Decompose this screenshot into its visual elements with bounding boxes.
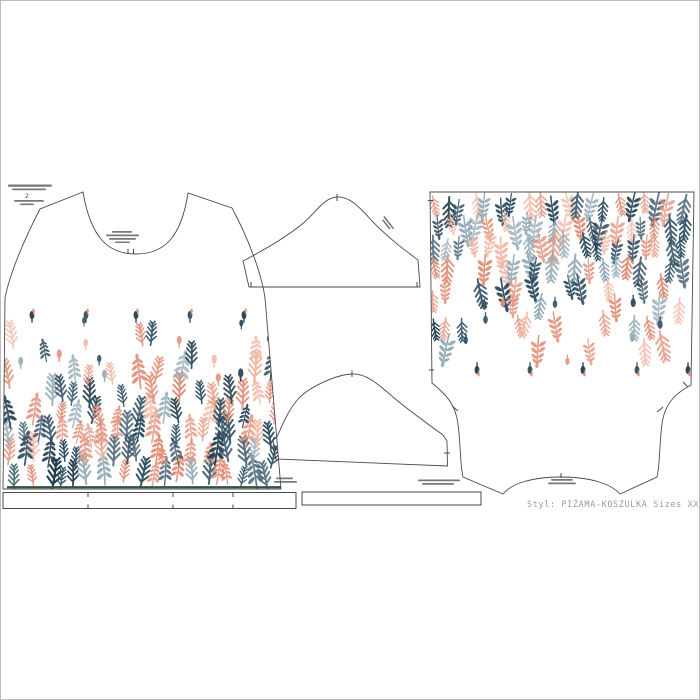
- style-size-caption: Styl: PIŻAMA-KOSZULKA Sizes XXL: [527, 499, 700, 510]
- hem-band-strip-1: [3, 493, 296, 509]
- leaf-motif: [598, 310, 611, 336]
- leaf-motif: [528, 335, 547, 369]
- leaf-motif: [256, 460, 273, 490]
- leaf-motif: [18, 357, 23, 368]
- leaf-motif: [545, 251, 560, 283]
- sleeve-2-label: [274, 478, 297, 483]
- sleeve-piece-2-outline: [273, 374, 448, 466]
- leaf-motif: [614, 193, 627, 217]
- leaf-motif: [546, 311, 567, 344]
- leaf-motif: [41, 415, 57, 446]
- front-panel-floral-print: [0, 309, 281, 491]
- leaf-motif: [581, 338, 598, 367]
- sewing-pattern-panel-sheet: 2 Styl: PIŻAMA-KOSZULKA Sizes XXL: [0, 0, 700, 700]
- hem-band-strip-2: [302, 492, 481, 505]
- leaf-motif: [570, 190, 584, 220]
- leaf-motif: [66, 381, 78, 405]
- leaf-motif: [248, 376, 267, 405]
- leaf-motif: [182, 413, 199, 443]
- corner-piece-number: 2: [25, 193, 29, 200]
- back-neck-label: [548, 479, 576, 484]
- leaf-motif: [640, 191, 650, 213]
- leaf-motif: [598, 258, 610, 282]
- leaf-motif: [65, 397, 86, 429]
- leaf-motif: [82, 364, 94, 387]
- leaf-motif: [212, 355, 217, 367]
- leaf-motif: [2, 437, 16, 465]
- leaf-motif: [472, 278, 489, 309]
- leaf-motif: [237, 466, 249, 488]
- leaf-motif: [440, 238, 453, 262]
- leaf-motif: [53, 374, 68, 402]
- leaf-motif: [145, 321, 157, 346]
- leaf-motif: [654, 329, 673, 363]
- back-panel-floral-print: [427, 190, 693, 377]
- leaf-motif: [26, 464, 37, 486]
- leaf-motif: [119, 459, 131, 482]
- sleeve-1-label: [381, 216, 394, 231]
- leaf-motif: [239, 320, 243, 329]
- leaf-motif: [639, 338, 652, 366]
- leaf-motif: [169, 397, 183, 423]
- leaf-motif: [97, 355, 101, 365]
- leaf-motif: [65, 353, 83, 384]
- leaf-motif: [105, 362, 117, 385]
- leaf-motif: [0, 393, 19, 430]
- leaf-motif: [238, 368, 243, 381]
- leaf-motif: [428, 291, 438, 313]
- pattern-layout-svg: 2 Styl: PIŻAMA-KOSZULKA Sizes XXL: [0, 0, 700, 700]
- leaf-motif: [441, 254, 455, 284]
- leaf-motif: [464, 334, 468, 344]
- leaf-motif: [216, 373, 221, 385]
- leaf-motif: [57, 349, 62, 361]
- leaf-motif: [102, 370, 107, 382]
- strip-2-label: [418, 480, 460, 485]
- leaf-motif: [83, 339, 88, 350]
- leaf-motif: [439, 279, 452, 304]
- leaf-motif: [565, 355, 569, 365]
- corner-info-block: 2: [8, 185, 52, 206]
- leaf-motif: [55, 415, 69, 443]
- leaf-motif: [155, 391, 175, 424]
- sleeve-piece-1-outline: [243, 197, 420, 287]
- leaf-motif: [177, 336, 182, 347]
- leaf-motif: [631, 295, 636, 307]
- leaf-motif: [568, 254, 583, 286]
- leaf-motif: [8, 464, 18, 489]
- leaf-motif: [134, 322, 147, 346]
- leaf-motif: [673, 298, 685, 325]
- leaf-motif: [483, 313, 488, 324]
- leaf-motif: [4, 320, 19, 349]
- front-neck-label: [106, 231, 139, 243]
- leaf-motif: [116, 384, 128, 407]
- leaf-motif: [553, 297, 558, 308]
- leaf-motif: [0, 358, 15, 389]
- leaf-motif: [107, 435, 121, 466]
- leaf-motif: [604, 279, 614, 301]
- leaf-motif: [195, 380, 207, 404]
- leaf-motif: [182, 437, 199, 467]
- leaf-motif: [36, 337, 52, 362]
